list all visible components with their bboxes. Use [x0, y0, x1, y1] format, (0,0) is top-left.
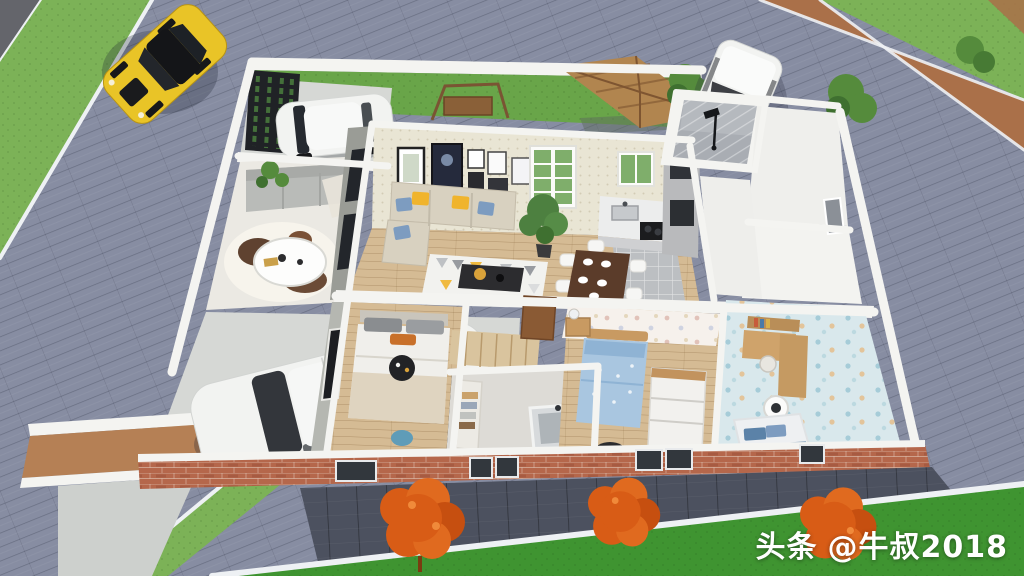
- kids-bedroom: [558, 306, 722, 462]
- kitchen-counter: [598, 196, 668, 252]
- kids-bed: [576, 328, 648, 428]
- master-bed: [348, 310, 450, 424]
- kitchen-window: [618, 152, 654, 186]
- watermark-brand: 头条: [756, 530, 818, 565]
- coffee-table: [458, 264, 524, 292]
- blue-basin: [391, 430, 413, 446]
- shower-room: [664, 92, 766, 172]
- patio-table: [254, 238, 326, 286]
- watermark-handle: @牛叔2018: [828, 530, 1009, 565]
- kids-dresser: [648, 368, 706, 450]
- watermark: 头条@牛叔2018: [756, 522, 1009, 566]
- floorplan-render: 头条@牛叔2018: [0, 0, 1024, 576]
- scene-canvas: [0, 0, 1024, 576]
